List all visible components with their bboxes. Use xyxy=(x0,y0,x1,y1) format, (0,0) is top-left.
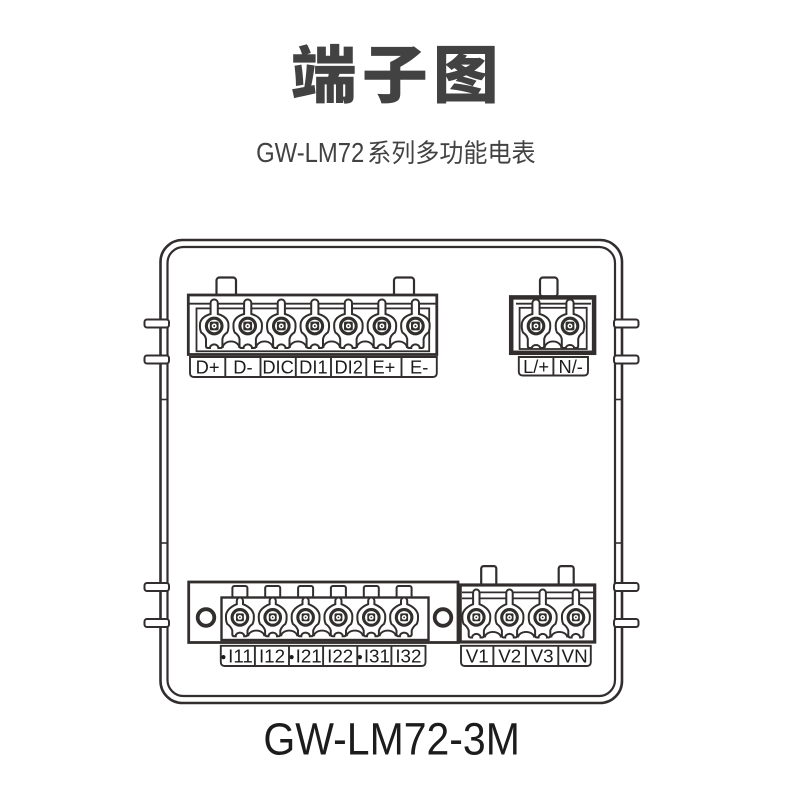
svg-text:I22: I22 xyxy=(327,646,353,667)
svg-text:GW-LM72-3M: GW-LM72-3M xyxy=(263,715,520,765)
svg-text:E+: E+ xyxy=(372,357,395,378)
svg-text:D+: D+ xyxy=(196,357,220,378)
svg-text:DI2: DI2 xyxy=(334,357,362,378)
svg-text:DI1: DI1 xyxy=(299,357,327,378)
svg-text:I31: I31 xyxy=(364,646,390,667)
svg-text:I11: I11 xyxy=(228,646,253,667)
svg-text:V2: V2 xyxy=(498,646,521,667)
svg-text:GW-LM72: GW-LM72 xyxy=(256,139,364,169)
svg-text:I21: I21 xyxy=(296,646,322,667)
svg-text:DIC: DIC xyxy=(262,357,293,378)
svg-text:V1: V1 xyxy=(466,646,489,667)
svg-text:E-: E- xyxy=(410,357,428,378)
svg-text:D-: D- xyxy=(233,357,252,378)
svg-text:N/-: N/- xyxy=(559,356,583,377)
svg-text:I32: I32 xyxy=(395,646,421,667)
svg-text:VN: VN xyxy=(562,646,588,667)
svg-text:L/+: L/+ xyxy=(523,356,549,377)
svg-text:V3: V3 xyxy=(531,646,554,667)
svg-text:I12: I12 xyxy=(259,646,285,667)
